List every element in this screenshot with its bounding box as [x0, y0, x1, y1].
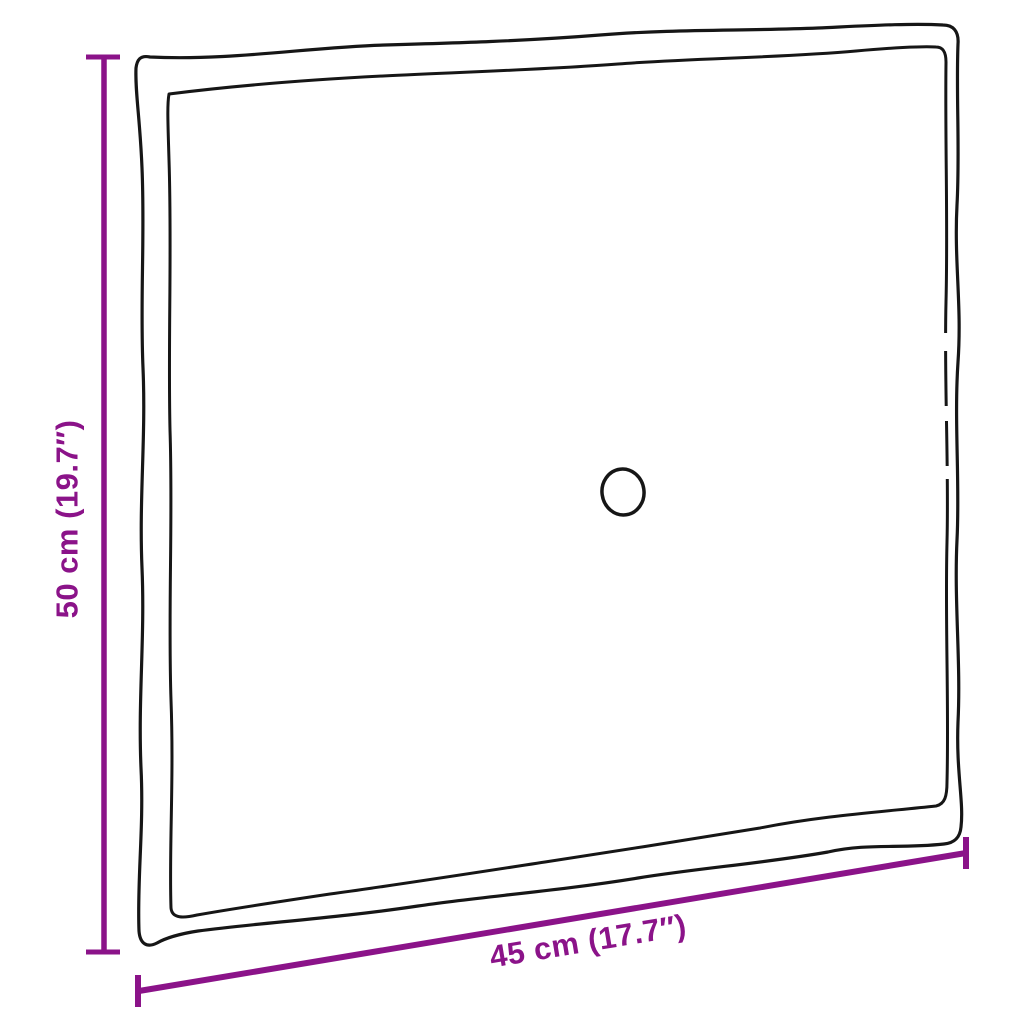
- width-dimension-line: [139, 853, 966, 991]
- cushion-button-icon: [599, 466, 647, 517]
- cushion-inner-seam: [168, 47, 948, 917]
- cushion-outline: [136, 24, 962, 945]
- cushion-outer-edge: [136, 24, 962, 945]
- height-dimension: 50 cm (19.7″): [50, 57, 121, 952]
- width-dimension: 45 cm (17.7″): [138, 837, 966, 1007]
- dimension-diagram: 50 cm (19.7″) 45 cm (17.7″): [0, 0, 1024, 1024]
- height-dimension-label: 50 cm (19.7″): [50, 420, 85, 619]
